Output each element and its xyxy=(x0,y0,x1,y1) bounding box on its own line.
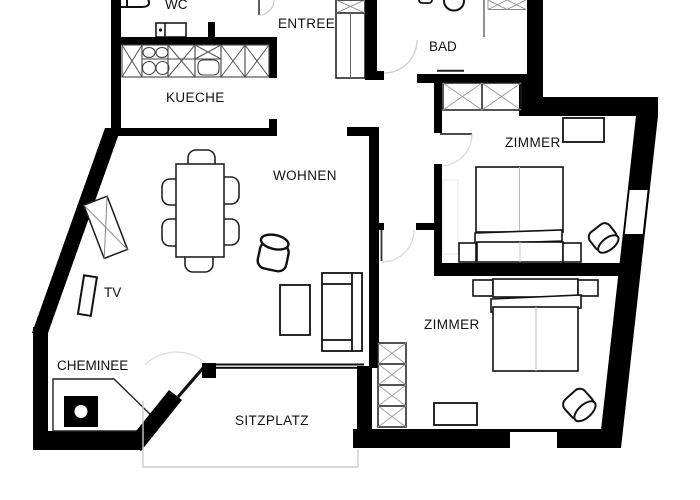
svg-text:SITZPLATZ: SITZPLATZ xyxy=(235,413,309,428)
svg-text:KUECHE: KUECHE xyxy=(166,90,225,105)
svg-text:BAD: BAD xyxy=(429,39,457,54)
svg-text:CHEMINEE: CHEMINEE xyxy=(57,358,128,373)
svg-text:WC: WC xyxy=(165,0,188,12)
svg-text:WOHNEN: WOHNEN xyxy=(273,168,337,183)
svg-text:ZIMMER: ZIMMER xyxy=(424,317,480,332)
svg-text:TV: TV xyxy=(104,285,121,300)
svg-text:ZIMMER: ZIMMER xyxy=(505,135,561,150)
svg-text:ENTREE: ENTREE xyxy=(278,16,335,31)
